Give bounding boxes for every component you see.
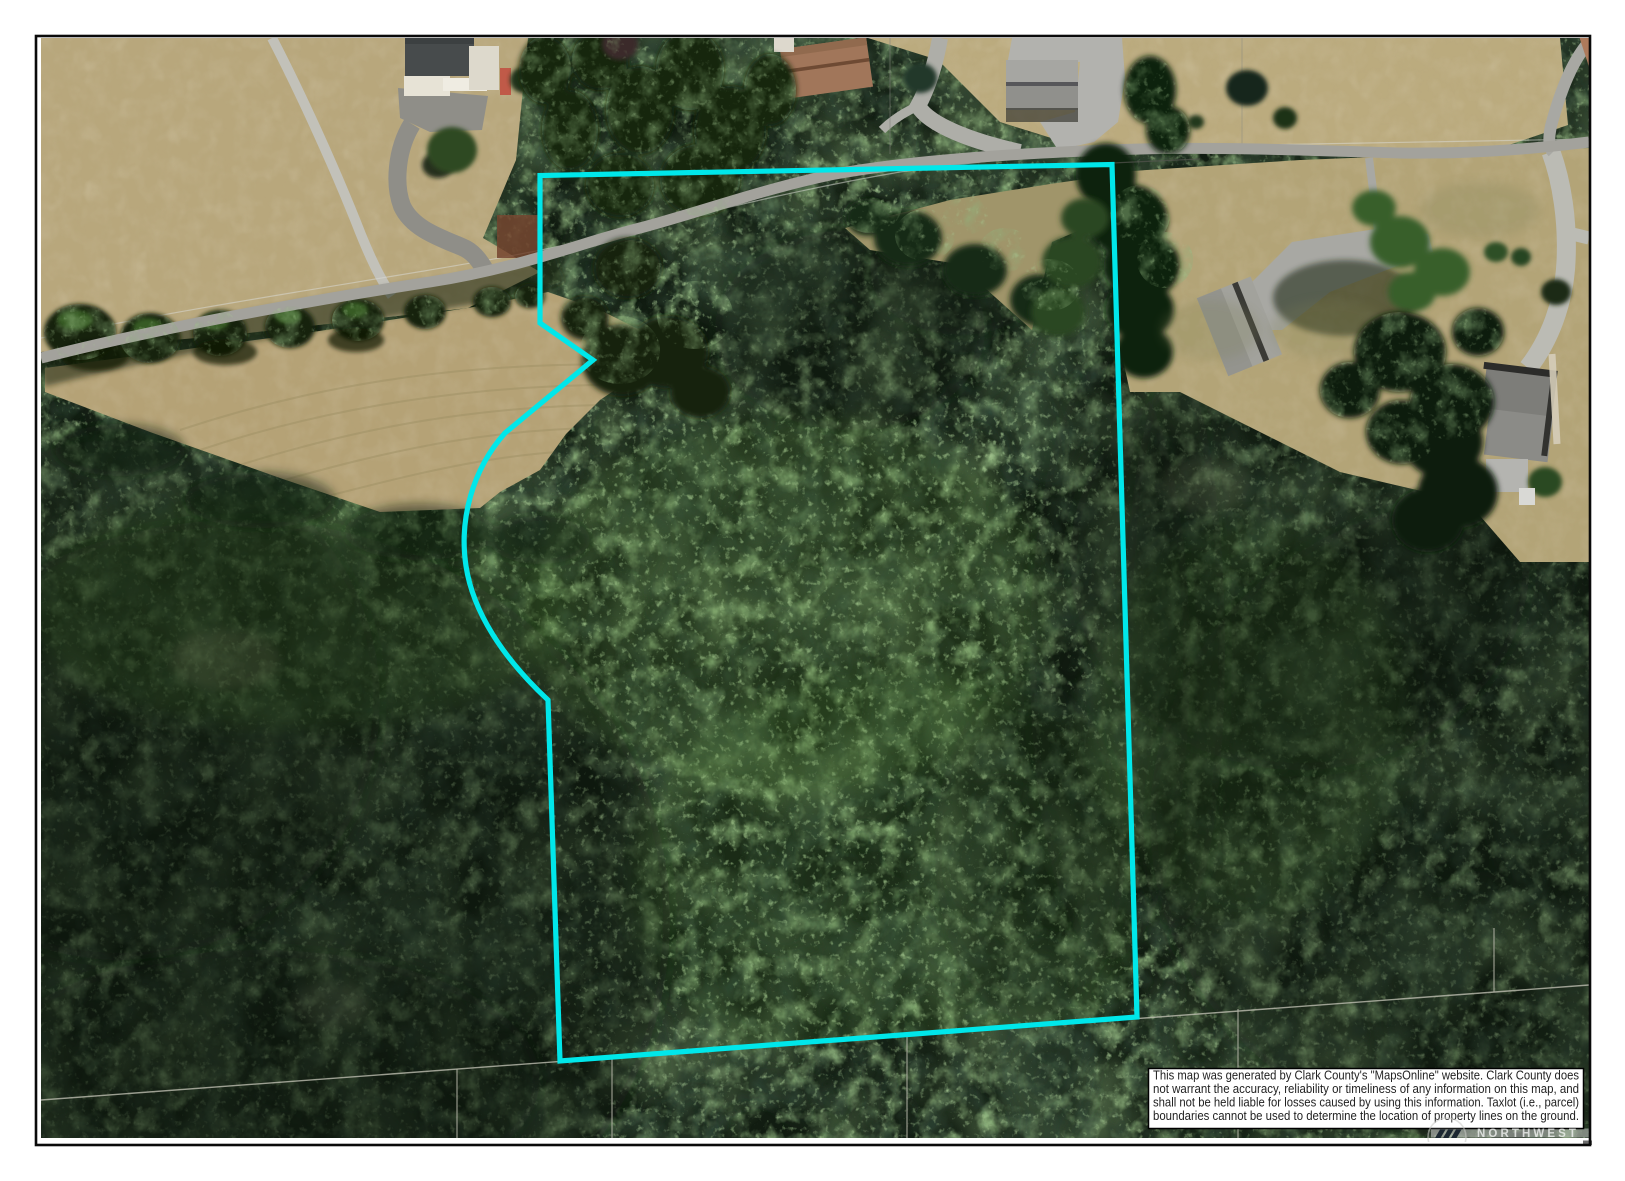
- svg-text:NORTHWEST: NORTHWEST: [1477, 1128, 1579, 1140]
- svg-text:boundaries cannot be used to d: boundaries cannot be used to determine t…: [1153, 1108, 1579, 1123]
